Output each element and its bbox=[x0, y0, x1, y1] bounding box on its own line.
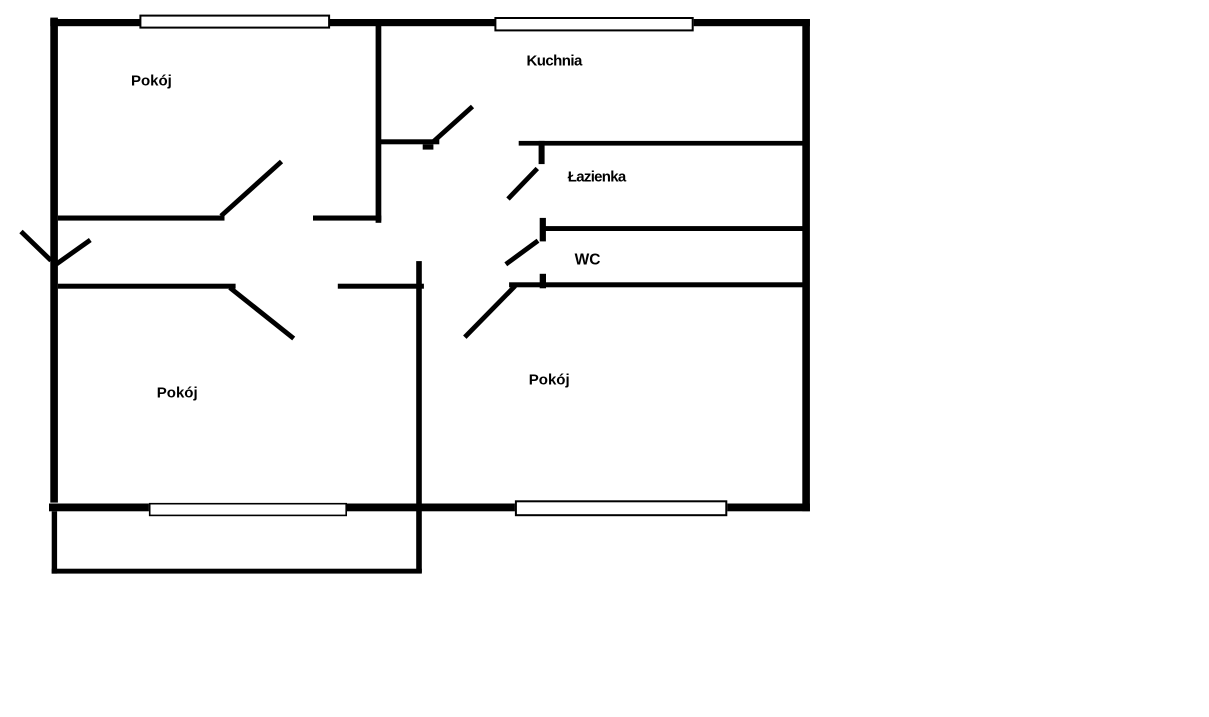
svg-text:Pokój: Pokój bbox=[157, 384, 198, 401]
svg-text:Pokój: Pokój bbox=[131, 73, 172, 90]
svg-text:Łazienka: Łazienka bbox=[568, 169, 627, 186]
svg-text:Pokój: Pokój bbox=[529, 371, 570, 388]
svg-text:WC: WC bbox=[575, 252, 601, 269]
svg-text:Kuchnia: Kuchnia bbox=[527, 52, 584, 69]
